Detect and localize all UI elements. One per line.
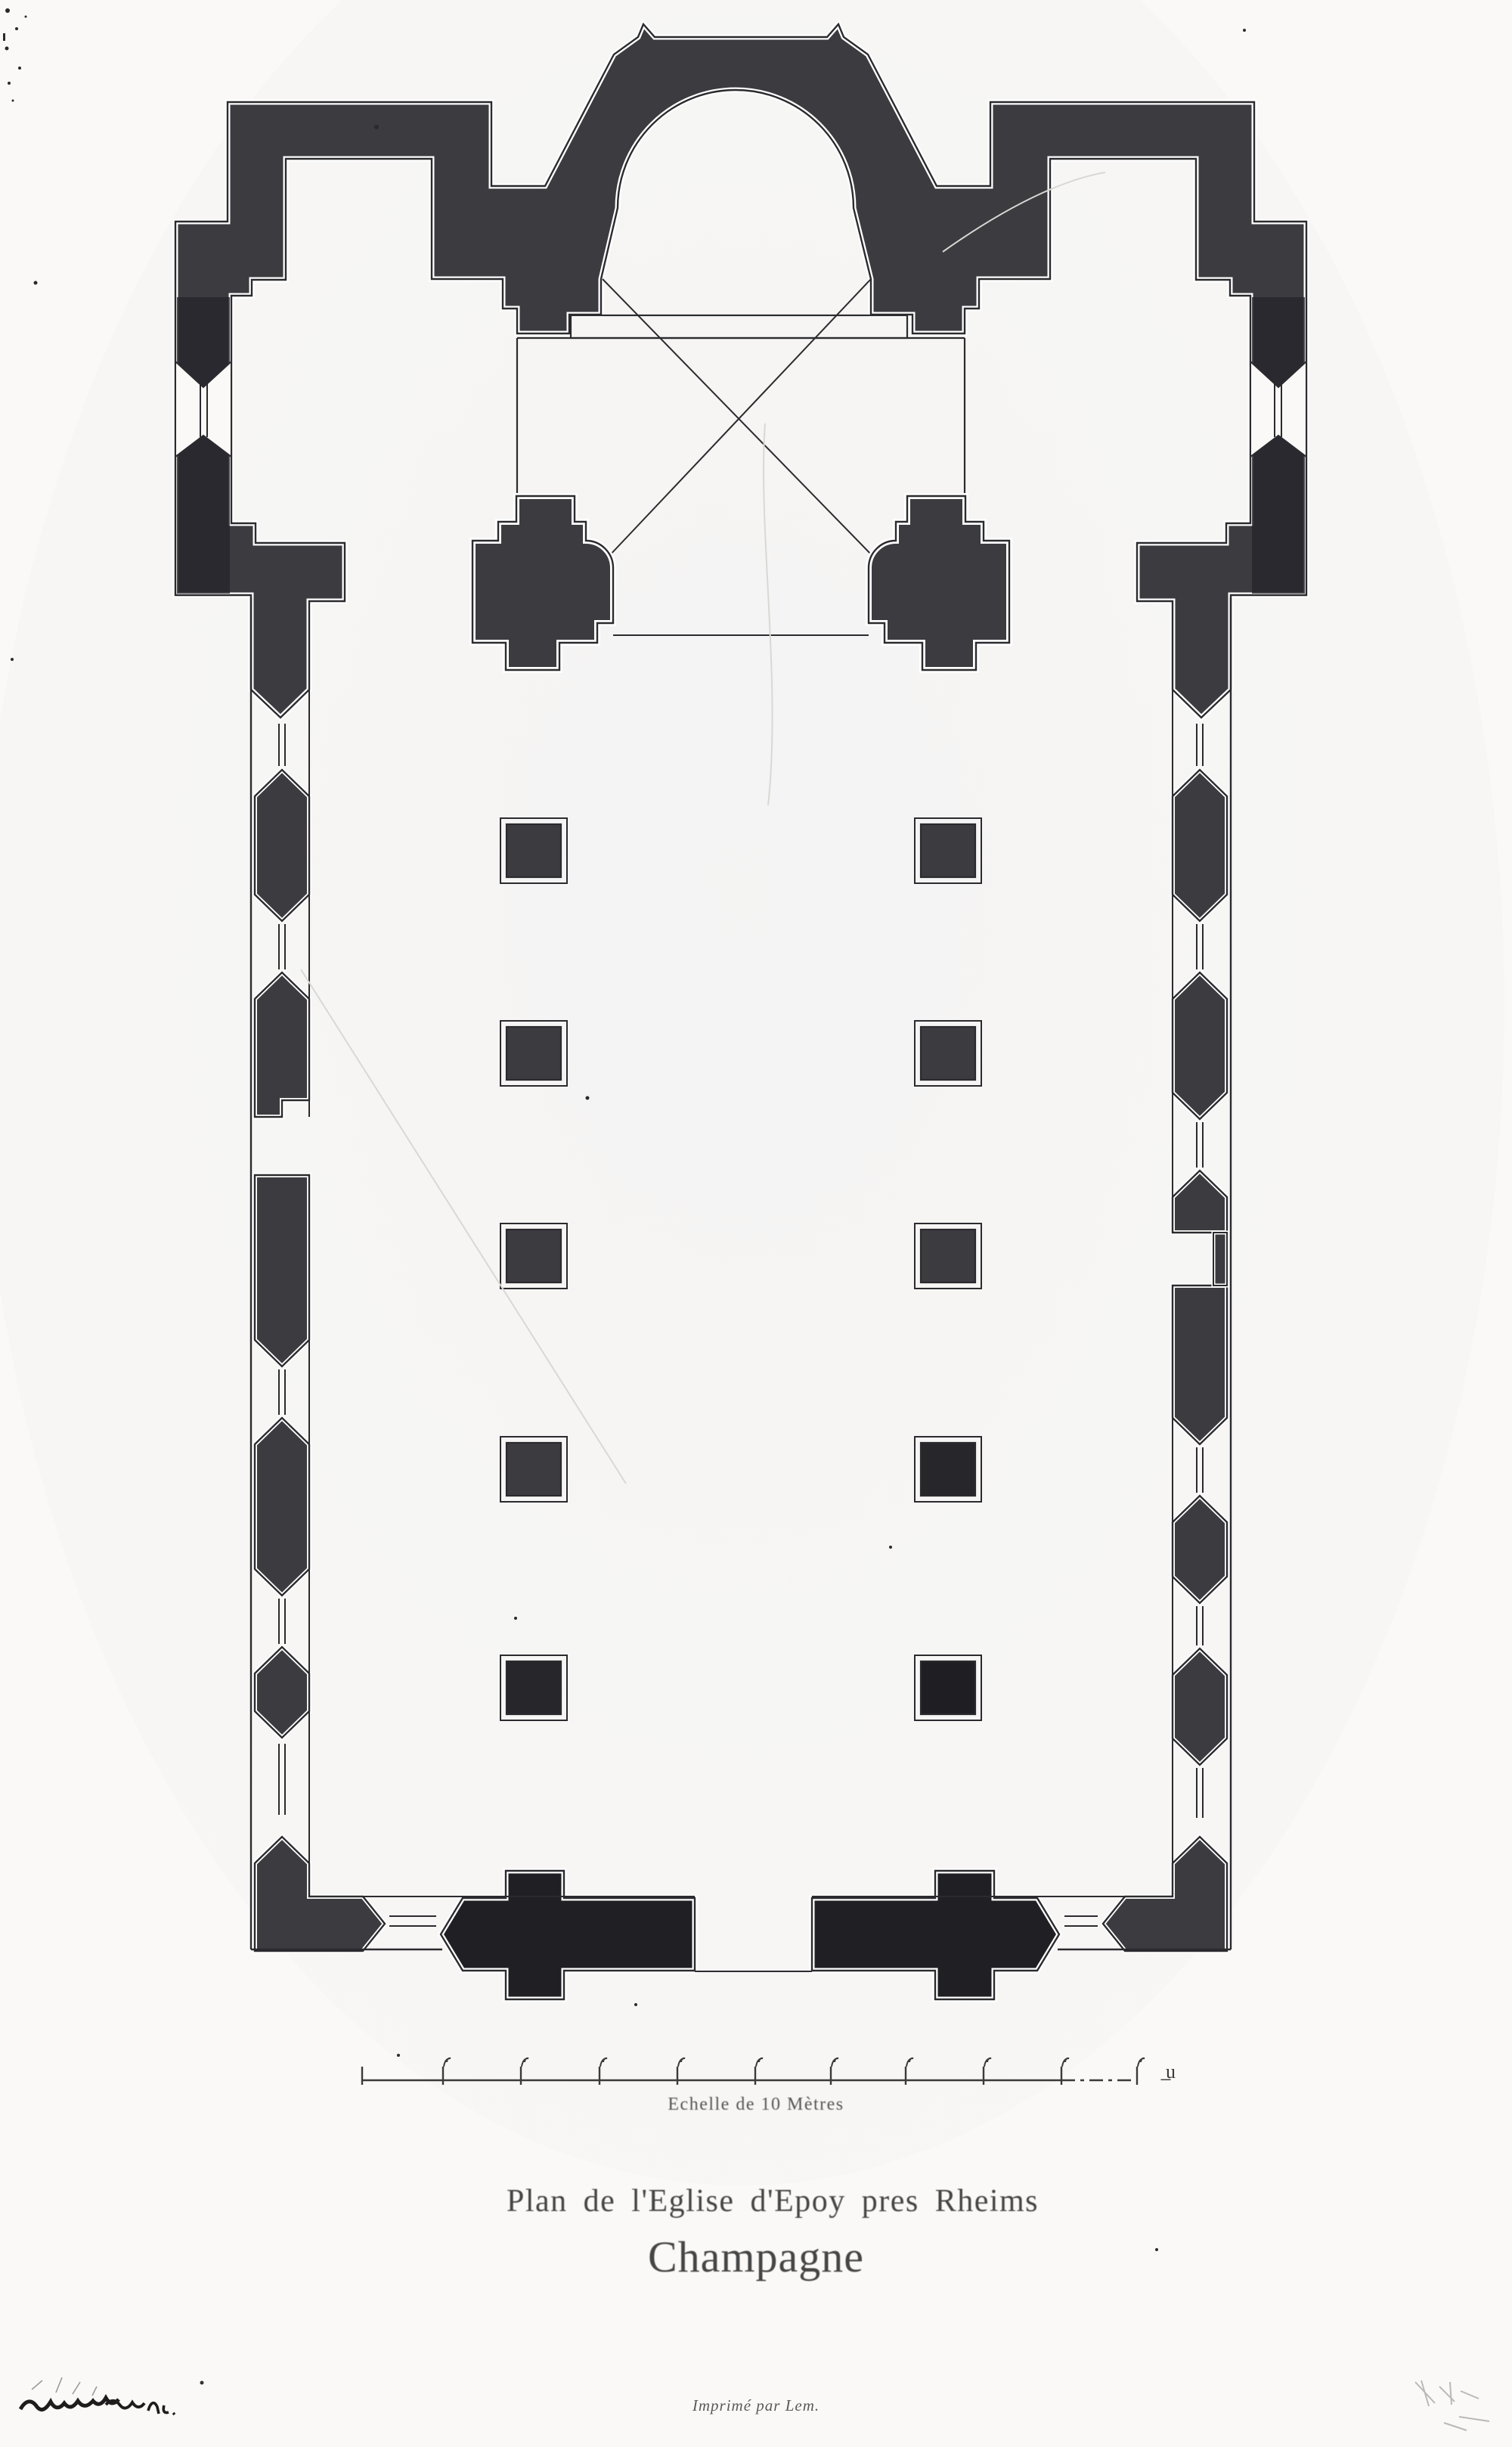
svg-text:Echelle de 10 Mètres: Echelle de 10 Mètres [668,2095,844,2114]
svg-text:Champagne: Champagne [648,2232,864,2281]
svg-text:Imprimé par Lem.: Imprimé par Lem. [692,2396,820,2414]
svg-text:̲u: ̲u [1160,2061,1176,2083]
svg-text:Plan de l'Eglise d'Epoy pres R: Plan de l'Eglise d'Epoy pres Rheims [507,2184,1039,2219]
